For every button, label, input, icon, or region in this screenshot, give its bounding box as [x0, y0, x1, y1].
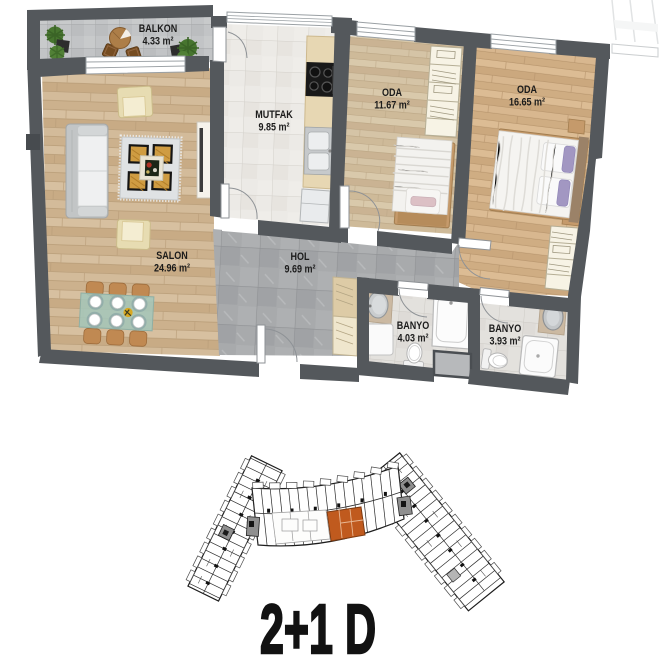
svg-text:24.96 m²: 24.96 m² [154, 263, 191, 275]
svg-text:11.67 m²: 11.67 m² [374, 100, 410, 112]
svg-text:HOL: HOL [290, 251, 309, 263]
svg-text:SALON: SALON [156, 250, 188, 262]
svg-text:2+1 D: 2+1 D [260, 590, 376, 662]
svg-text:BANYO: BANYO [489, 323, 522, 335]
svg-text:9.69 m²: 9.69 m² [284, 264, 316, 276]
svg-text:4.33 m²: 4.33 m² [142, 36, 174, 48]
svg-text:9.85 m²: 9.85 m² [258, 122, 290, 134]
svg-text:ODA: ODA [517, 84, 537, 96]
svg-text:3.93 m²: 3.93 m² [489, 336, 521, 348]
svg-text:MUTFAK: MUTFAK [255, 109, 293, 121]
svg-text:BALKON: BALKON [139, 23, 178, 35]
svg-text:4.03 m²: 4.03 m² [397, 333, 429, 345]
svg-text:ODA: ODA [382, 87, 402, 99]
svg-text:BANYO: BANYO [397, 320, 430, 332]
svg-text:16.65 m²: 16.65 m² [509, 97, 546, 109]
